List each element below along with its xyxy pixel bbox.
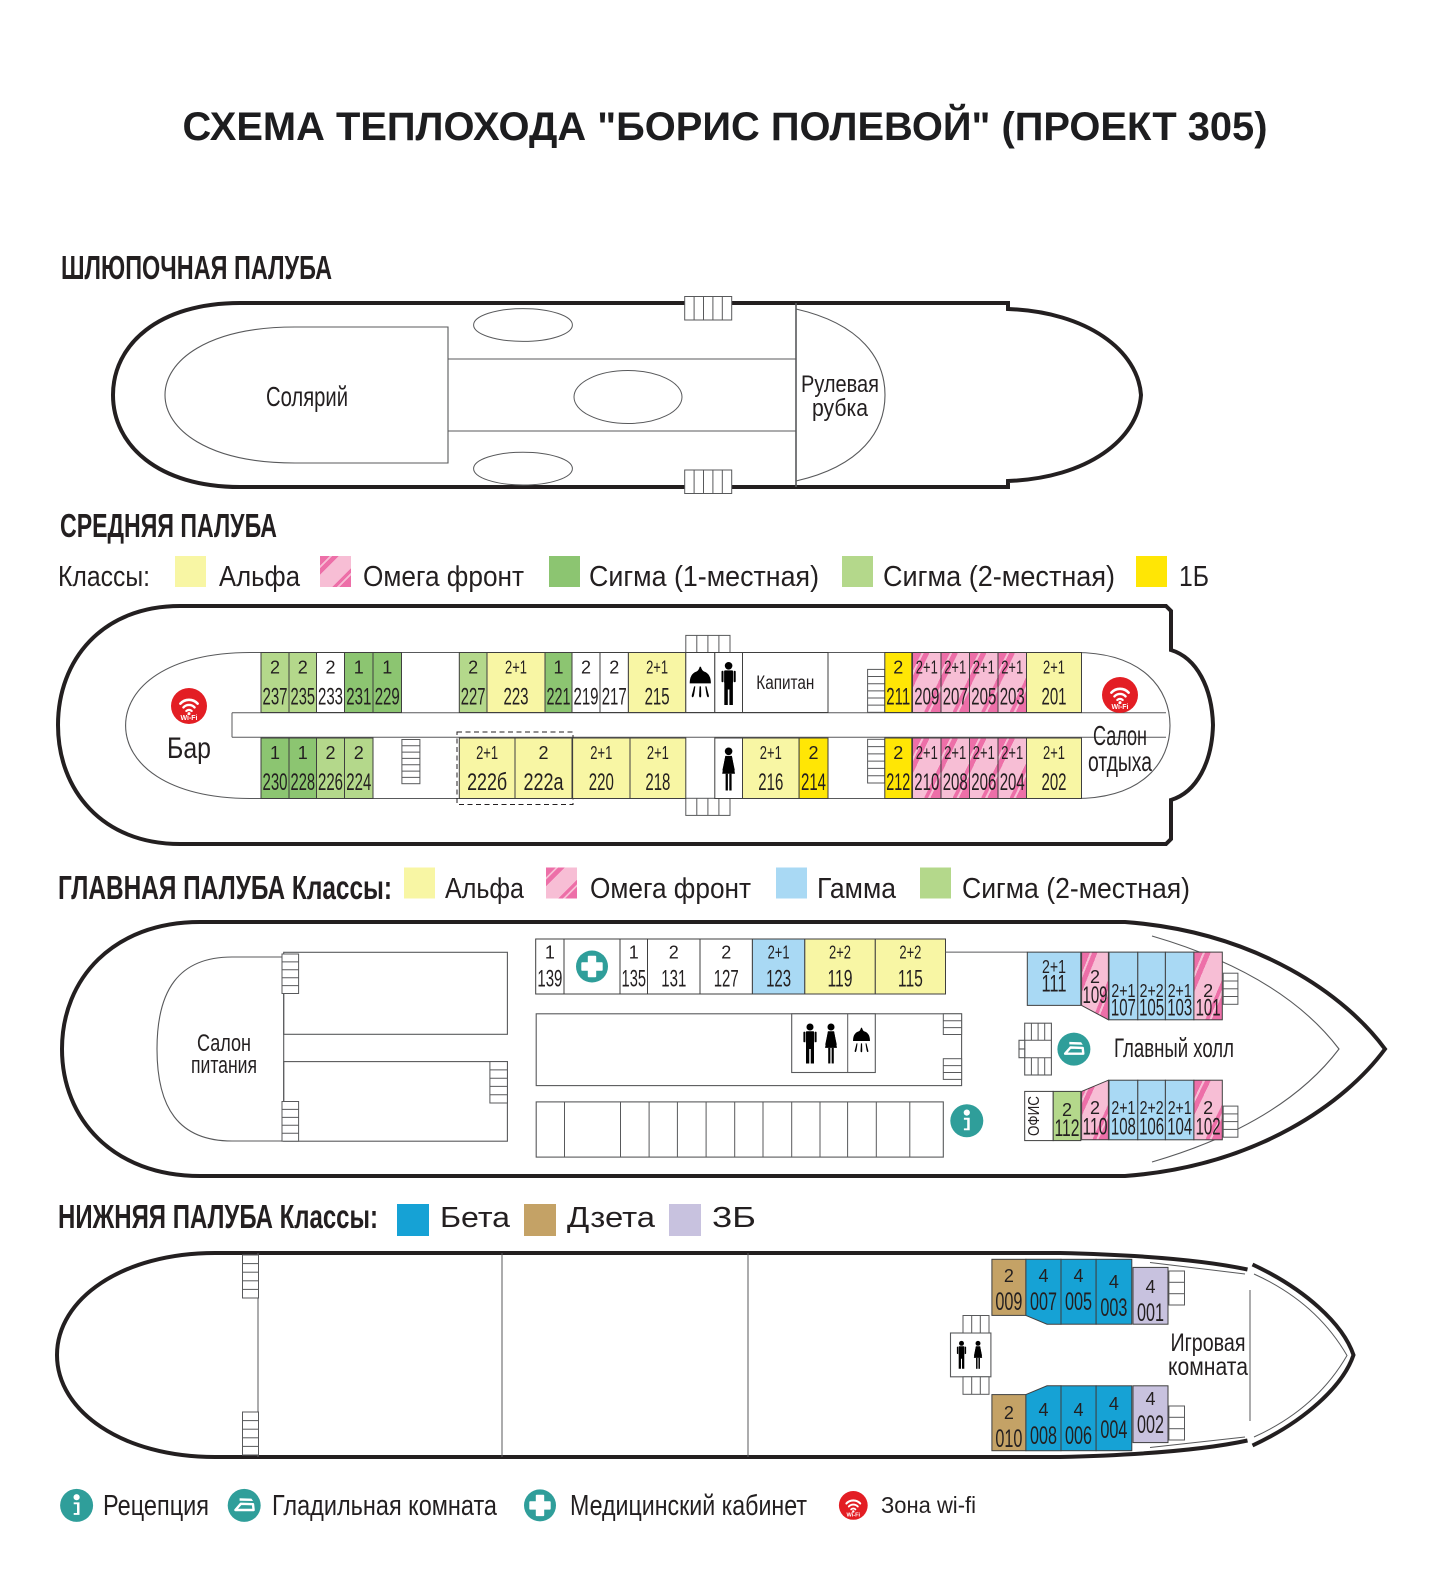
svg-text:2: 2: [325, 658, 335, 678]
svg-text:202: 202: [1042, 769, 1067, 796]
svg-text:2+1: 2+1: [973, 658, 995, 678]
svg-text:005: 005: [1065, 1288, 1092, 1316]
svg-text:209: 209: [914, 684, 939, 711]
svg-text:2: 2: [354, 743, 364, 763]
svg-text:003: 003: [1100, 1294, 1127, 1322]
svg-text:ОФИС: ОФИС: [1026, 1096, 1043, 1136]
svg-text:215: 215: [645, 684, 670, 711]
svg-text:2+1: 2+1: [646, 658, 668, 678]
svg-text:235: 235: [291, 684, 316, 711]
svg-text:212: 212: [886, 769, 910, 796]
svg-text:204: 204: [1000, 769, 1025, 796]
svg-text:216: 216: [758, 769, 783, 796]
svg-text:237: 237: [263, 684, 288, 711]
svg-text:111: 111: [1042, 971, 1067, 998]
svg-text:Гладильная комната: Гладильная комната: [272, 1490, 498, 1522]
svg-text:2+1: 2+1: [916, 743, 938, 763]
svg-text:2+1: 2+1: [1001, 743, 1023, 763]
svg-text:221: 221: [547, 684, 571, 711]
svg-text:3Б: 3Б: [712, 1202, 756, 1234]
svg-text:2: 2: [609, 658, 619, 678]
svg-text:1Б: 1Б: [1179, 561, 1209, 593]
svg-text:Бар: Бар: [167, 732, 211, 765]
svg-text:4: 4: [1073, 1266, 1083, 1286]
svg-text:228: 228: [291, 769, 316, 796]
svg-text:217: 217: [602, 684, 627, 711]
svg-text:218: 218: [645, 769, 670, 796]
svg-text:2+1: 2+1: [760, 743, 782, 763]
svg-text:4: 4: [1038, 1266, 1048, 1286]
svg-text:2+1: 2+1: [1043, 658, 1065, 678]
svg-text:108: 108: [1111, 1114, 1136, 1141]
svg-text:226: 226: [318, 769, 343, 796]
svg-text:009: 009: [995, 1288, 1022, 1316]
svg-text:2+2: 2+2: [829, 943, 851, 963]
svg-text:2: 2: [669, 943, 679, 963]
svg-text:Главный холл: Главный холл: [1114, 1033, 1234, 1063]
svg-text:004: 004: [1100, 1416, 1127, 1444]
svg-text:110: 110: [1083, 1114, 1108, 1141]
svg-text:2: 2: [581, 658, 591, 678]
svg-text:109: 109: [1083, 982, 1108, 1009]
svg-text:Бета: Бета: [440, 1202, 511, 1234]
svg-text:Омега фронт: Омега фронт: [590, 873, 751, 905]
svg-text:Классы:: Классы:: [58, 561, 150, 593]
svg-text:214: 214: [801, 769, 826, 796]
svg-text:1: 1: [270, 743, 280, 763]
svg-text:123: 123: [766, 966, 791, 993]
svg-text:211: 211: [886, 684, 910, 711]
svg-text:208: 208: [943, 769, 968, 796]
svg-text:2: 2: [298, 658, 308, 678]
svg-text:139: 139: [537, 966, 562, 993]
svg-text:115: 115: [898, 966, 923, 993]
svg-text:2: 2: [1004, 1403, 1014, 1423]
svg-text:007: 007: [1030, 1288, 1057, 1316]
svg-text:210: 210: [914, 769, 939, 796]
svg-text:106: 106: [1139, 1114, 1164, 1141]
svg-text:СРЕДНЯЯ ПАЛУБА: СРЕДНЯЯ ПАЛУБА: [60, 507, 277, 544]
svg-text:224: 224: [346, 769, 371, 796]
svg-text:Дзета: Дзета: [567, 1202, 656, 1234]
svg-text:1: 1: [382, 658, 392, 678]
svg-text:НИЖНЯЯ ПАЛУБА Классы:: НИЖНЯЯ ПАЛУБА Классы:: [58, 1198, 378, 1235]
svg-text:4: 4: [1145, 1389, 1155, 1409]
svg-text:222б: 222б: [467, 769, 507, 796]
svg-text:СХЕМА ТЕПЛОХОДА "БОРИС ПОЛЕВОЙ: СХЕМА ТЕПЛОХОДА "БОРИС ПОЛЕВОЙ" (ПРОЕКТ …: [183, 103, 1268, 149]
svg-text:2+1: 2+1: [768, 943, 790, 963]
svg-text:Сигма (2-местная): Сигма (2-местная): [962, 873, 1190, 905]
svg-text:2+1: 2+1: [944, 658, 966, 678]
svg-text:2: 2: [538, 743, 548, 763]
svg-text:Альфа: Альфа: [219, 561, 301, 593]
svg-text:2+1: 2+1: [973, 743, 995, 763]
svg-text:Альфа: Альфа: [445, 873, 525, 905]
svg-text:002: 002: [1137, 1411, 1164, 1439]
svg-text:Зона wi-fi: Зона wi-fi: [881, 1492, 976, 1518]
svg-text:006: 006: [1065, 1422, 1092, 1450]
svg-text:комната: комната: [1168, 1353, 1248, 1381]
svg-text:2+1: 2+1: [916, 658, 938, 678]
svg-text:2+1: 2+1: [1001, 658, 1023, 678]
svg-text:4: 4: [1109, 1394, 1119, 1414]
svg-text:Солярий: Солярий: [266, 381, 348, 412]
svg-text:1: 1: [545, 943, 555, 963]
svg-text:104: 104: [1167, 1114, 1192, 1141]
svg-text:1: 1: [553, 658, 563, 678]
svg-text:Рецепция: Рецепция: [103, 1490, 209, 1522]
svg-text:2+1: 2+1: [1043, 743, 1065, 763]
svg-text:231: 231: [346, 684, 371, 711]
svg-text:рубка: рубка: [812, 395, 869, 422]
svg-text:112: 112: [1055, 1115, 1080, 1142]
svg-text:2+2: 2+2: [899, 943, 921, 963]
svg-text:2: 2: [893, 658, 903, 678]
svg-text:Медицинский кабинет: Медицинский кабинет: [570, 1490, 807, 1522]
svg-text:206: 206: [971, 769, 996, 796]
svg-text:220: 220: [589, 769, 614, 796]
svg-text:233: 233: [318, 684, 343, 711]
svg-text:отдыха: отдыха: [1088, 746, 1152, 777]
svg-text:203: 203: [1000, 684, 1025, 711]
svg-text:227: 227: [461, 684, 486, 711]
svg-text:107: 107: [1111, 995, 1136, 1022]
svg-text:222а: 222а: [524, 769, 564, 796]
svg-text:Капитан: Капитан: [756, 673, 814, 694]
svg-text:010: 010: [995, 1425, 1022, 1453]
svg-text:119: 119: [828, 966, 853, 993]
svg-text:2+1: 2+1: [590, 743, 612, 763]
svg-text:131: 131: [661, 966, 686, 993]
svg-text:2: 2: [325, 743, 335, 763]
svg-text:103: 103: [1167, 995, 1192, 1022]
svg-text:127: 127: [714, 966, 739, 993]
svg-text:ШЛЮПОЧНАЯ ПАЛУБА: ШЛЮПОЧНАЯ ПАЛУБА: [61, 249, 332, 286]
svg-text:2+1: 2+1: [476, 743, 498, 763]
svg-text:2+1: 2+1: [944, 743, 966, 763]
svg-text:питания: питания: [191, 1052, 257, 1079]
svg-text:Гамма: Гамма: [817, 873, 897, 905]
svg-text:2+1: 2+1: [505, 658, 527, 678]
svg-text:230: 230: [263, 769, 288, 796]
svg-text:1: 1: [354, 658, 364, 678]
svg-text:ГЛАВНАЯ ПАЛУБА Классы:: ГЛАВНАЯ ПАЛУБА Классы:: [58, 869, 392, 906]
svg-text:105: 105: [1139, 995, 1164, 1022]
svg-text:223: 223: [504, 684, 529, 711]
svg-text:Сигма (1-местная): Сигма (1-местная): [589, 561, 819, 593]
svg-text:4: 4: [1073, 1400, 1083, 1420]
svg-text:Рулевая: Рулевая: [801, 371, 879, 398]
svg-text:2: 2: [721, 943, 731, 963]
svg-text:2: 2: [808, 743, 818, 763]
svg-text:2: 2: [893, 743, 903, 763]
svg-text:Сигма (2-местная): Сигма (2-местная): [883, 561, 1115, 593]
svg-text:1: 1: [629, 943, 639, 963]
svg-text:135: 135: [622, 966, 647, 993]
svg-text:205: 205: [971, 684, 996, 711]
svg-text:2: 2: [468, 658, 478, 678]
svg-text:1: 1: [298, 743, 308, 763]
svg-text:101: 101: [1196, 995, 1221, 1022]
svg-text:2+1: 2+1: [647, 743, 669, 763]
svg-text:207: 207: [943, 684, 968, 711]
svg-text:2: 2: [1004, 1266, 1014, 1286]
svg-text:229: 229: [375, 684, 400, 711]
svg-text:2: 2: [270, 658, 280, 678]
svg-text:001: 001: [1137, 1299, 1164, 1327]
svg-text:008: 008: [1030, 1422, 1057, 1450]
svg-text:4: 4: [1109, 1272, 1119, 1292]
svg-text:Омега фронт: Омега фронт: [363, 561, 524, 593]
svg-text:4: 4: [1038, 1400, 1048, 1420]
svg-text:102: 102: [1196, 1114, 1221, 1141]
svg-text:201: 201: [1042, 684, 1067, 711]
svg-text:4: 4: [1145, 1277, 1155, 1297]
svg-text:219: 219: [574, 684, 599, 711]
